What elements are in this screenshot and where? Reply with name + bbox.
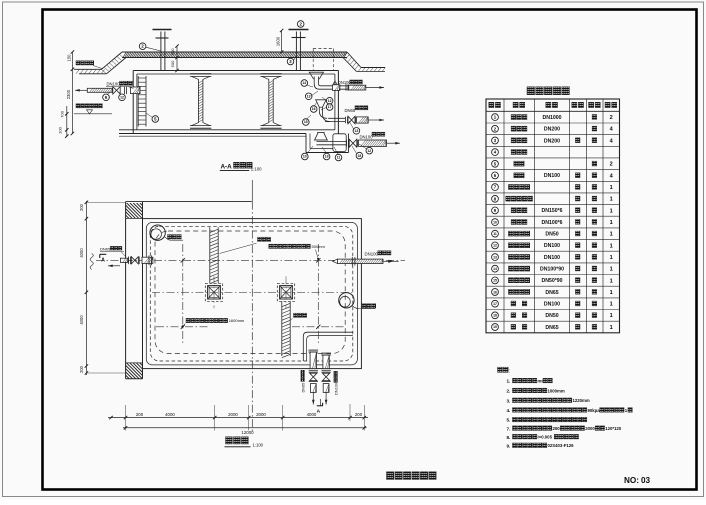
svg-text:1: 1 <box>610 243 613 249</box>
svg-text:13: 13 <box>493 255 497 259</box>
svg-text:4.: 4. <box>507 408 511 413</box>
svg-text:DN100: DN100 <box>544 302 560 308</box>
svg-text:1: 1 <box>610 302 613 308</box>
svg-text:11: 11 <box>337 156 341 160</box>
svg-text:A: A <box>101 258 105 264</box>
svg-text:DN150*6: DN150*6 <box>541 208 562 214</box>
svg-text:17: 17 <box>328 105 332 109</box>
svg-text:3.: 3. <box>507 398 511 403</box>
svg-text:9.: 9. <box>507 443 511 448</box>
svg-text:12: 12 <box>120 96 124 100</box>
svg-text:2: 2 <box>610 115 613 121</box>
svg-text:18: 18 <box>493 314 497 318</box>
svg-text:1:100: 1:100 <box>251 167 262 172</box>
svg-text:DN50: DN50 <box>545 313 558 319</box>
svg-text:DN100: DN100 <box>338 80 352 85</box>
svg-text:1: 1 <box>610 232 613 238</box>
svg-text:1.: 1. <box>507 379 511 384</box>
svg-text:DN100: DN100 <box>365 251 379 256</box>
svg-text:90kpa: 90kpa <box>588 408 601 413</box>
svg-text:200: 200 <box>355 412 363 417</box>
svg-text:1: 1 <box>610 325 613 331</box>
svg-text:200: 200 <box>136 412 144 417</box>
svg-text:17: 17 <box>493 302 497 306</box>
svg-text:13: 13 <box>355 129 359 133</box>
svg-text:2300: 2300 <box>66 89 71 99</box>
svg-text:5.: 5. <box>507 418 511 423</box>
svg-text:18: 18 <box>358 154 362 158</box>
svg-text:1600mm: 1600mm <box>229 318 245 323</box>
svg-text:16: 16 <box>493 290 497 294</box>
svg-text:DN100: DN100 <box>107 82 121 87</box>
svg-text:10: 10 <box>493 220 497 224</box>
svg-text:2.: 2. <box>507 389 511 394</box>
svg-text:4000: 4000 <box>165 412 175 417</box>
svg-text:12000: 12000 <box>241 430 254 435</box>
svg-text:1: 1 <box>610 197 613 203</box>
svg-text:4000: 4000 <box>307 412 317 417</box>
svg-text:700: 700 <box>60 110 65 117</box>
svg-text:1: 1 <box>610 290 613 296</box>
svg-text:19: 19 <box>493 325 497 329</box>
svg-text:600: 600 <box>170 48 175 55</box>
svg-text:500mm: 500mm <box>312 244 326 249</box>
svg-text:13: 13 <box>307 95 311 99</box>
svg-text:DN100: DN100 <box>544 173 560 179</box>
svg-text:1: 1 <box>610 313 613 319</box>
svg-text:12: 12 <box>493 244 497 248</box>
svg-text:200: 200 <box>79 203 84 211</box>
svg-text:1000mm: 1000mm <box>548 388 565 393</box>
svg-text:14: 14 <box>302 81 306 85</box>
svg-text:1600: 1600 <box>275 36 280 46</box>
svg-text:2000: 2000 <box>585 426 595 431</box>
svg-text:DN65: DN65 <box>545 290 558 296</box>
svg-text:4000: 4000 <box>79 248 84 258</box>
svg-text:DN100: DN100 <box>544 243 560 249</box>
svg-text:2: 2 <box>610 162 613 168</box>
svg-text:1: 1 <box>610 208 613 214</box>
svg-text:1: 1 <box>610 278 613 284</box>
svg-text:200: 200 <box>79 365 84 373</box>
svg-text:1:100: 1:100 <box>253 442 264 447</box>
svg-text:120*120: 120*120 <box>605 426 622 431</box>
svg-text:150: 150 <box>67 54 72 62</box>
svg-text:i=0.005: i=0.005 <box>538 435 553 440</box>
svg-text:DN100: DN100 <box>544 255 560 261</box>
svg-text:DN50*90: DN50*90 <box>541 278 562 284</box>
svg-text:8.: 8. <box>507 435 511 440</box>
svg-text:15: 15 <box>304 120 308 124</box>
svg-text:4000: 4000 <box>79 315 84 325</box>
svg-text:DN100: DN100 <box>360 135 374 140</box>
svg-text:16: 16 <box>312 107 316 111</box>
svg-text:DN100: DN100 <box>334 383 338 395</box>
svg-text:11: 11 <box>493 232 497 236</box>
svg-text:2000: 2000 <box>256 412 266 417</box>
svg-text::: : <box>509 368 510 374</box>
svg-text:DN1000: DN1000 <box>542 115 561 121</box>
svg-text:02S403-F126: 02S403-F126 <box>548 443 575 448</box>
svg-text:1: 1 <box>610 255 613 261</box>
svg-text:DN100*6: DN100*6 <box>541 220 562 226</box>
svg-text:DN65: DN65 <box>545 325 558 331</box>
svg-text:DN65: DN65 <box>100 247 111 252</box>
svg-text:14: 14 <box>493 267 497 271</box>
svg-text:1220mm: 1220mm <box>573 398 590 403</box>
svg-text:7.: 7. <box>507 426 511 431</box>
svg-text:DN50: DN50 <box>545 232 558 238</box>
svg-text:DN65: DN65 <box>345 108 356 113</box>
svg-text:200: 200 <box>553 426 561 431</box>
svg-text:12: 12 <box>328 99 332 103</box>
svg-text:NO:: NO: <box>624 476 639 485</box>
svg-text:19: 19 <box>325 155 329 159</box>
svg-text:500: 500 <box>170 60 175 67</box>
svg-text:A-A: A-A <box>221 164 233 171</box>
svg-text:2000: 2000 <box>228 412 238 417</box>
svg-text:03: 03 <box>641 476 651 485</box>
svg-text:DN200: DN200 <box>544 138 560 144</box>
svg-text:1: 1 <box>610 220 613 226</box>
svg-text:12: 12 <box>367 149 371 153</box>
svg-text:100: 100 <box>57 126 62 133</box>
svg-text:DN200: DN200 <box>544 127 560 133</box>
svg-text:A: A <box>317 409 321 415</box>
svg-text:DN100*90: DN100*90 <box>540 267 564 273</box>
svg-text:10: 10 <box>303 155 307 159</box>
svg-text:1: 1 <box>610 267 613 273</box>
svg-text:DN65: DN65 <box>301 383 305 393</box>
svg-text:1: 1 <box>610 185 613 191</box>
svg-text:15: 15 <box>493 279 497 283</box>
